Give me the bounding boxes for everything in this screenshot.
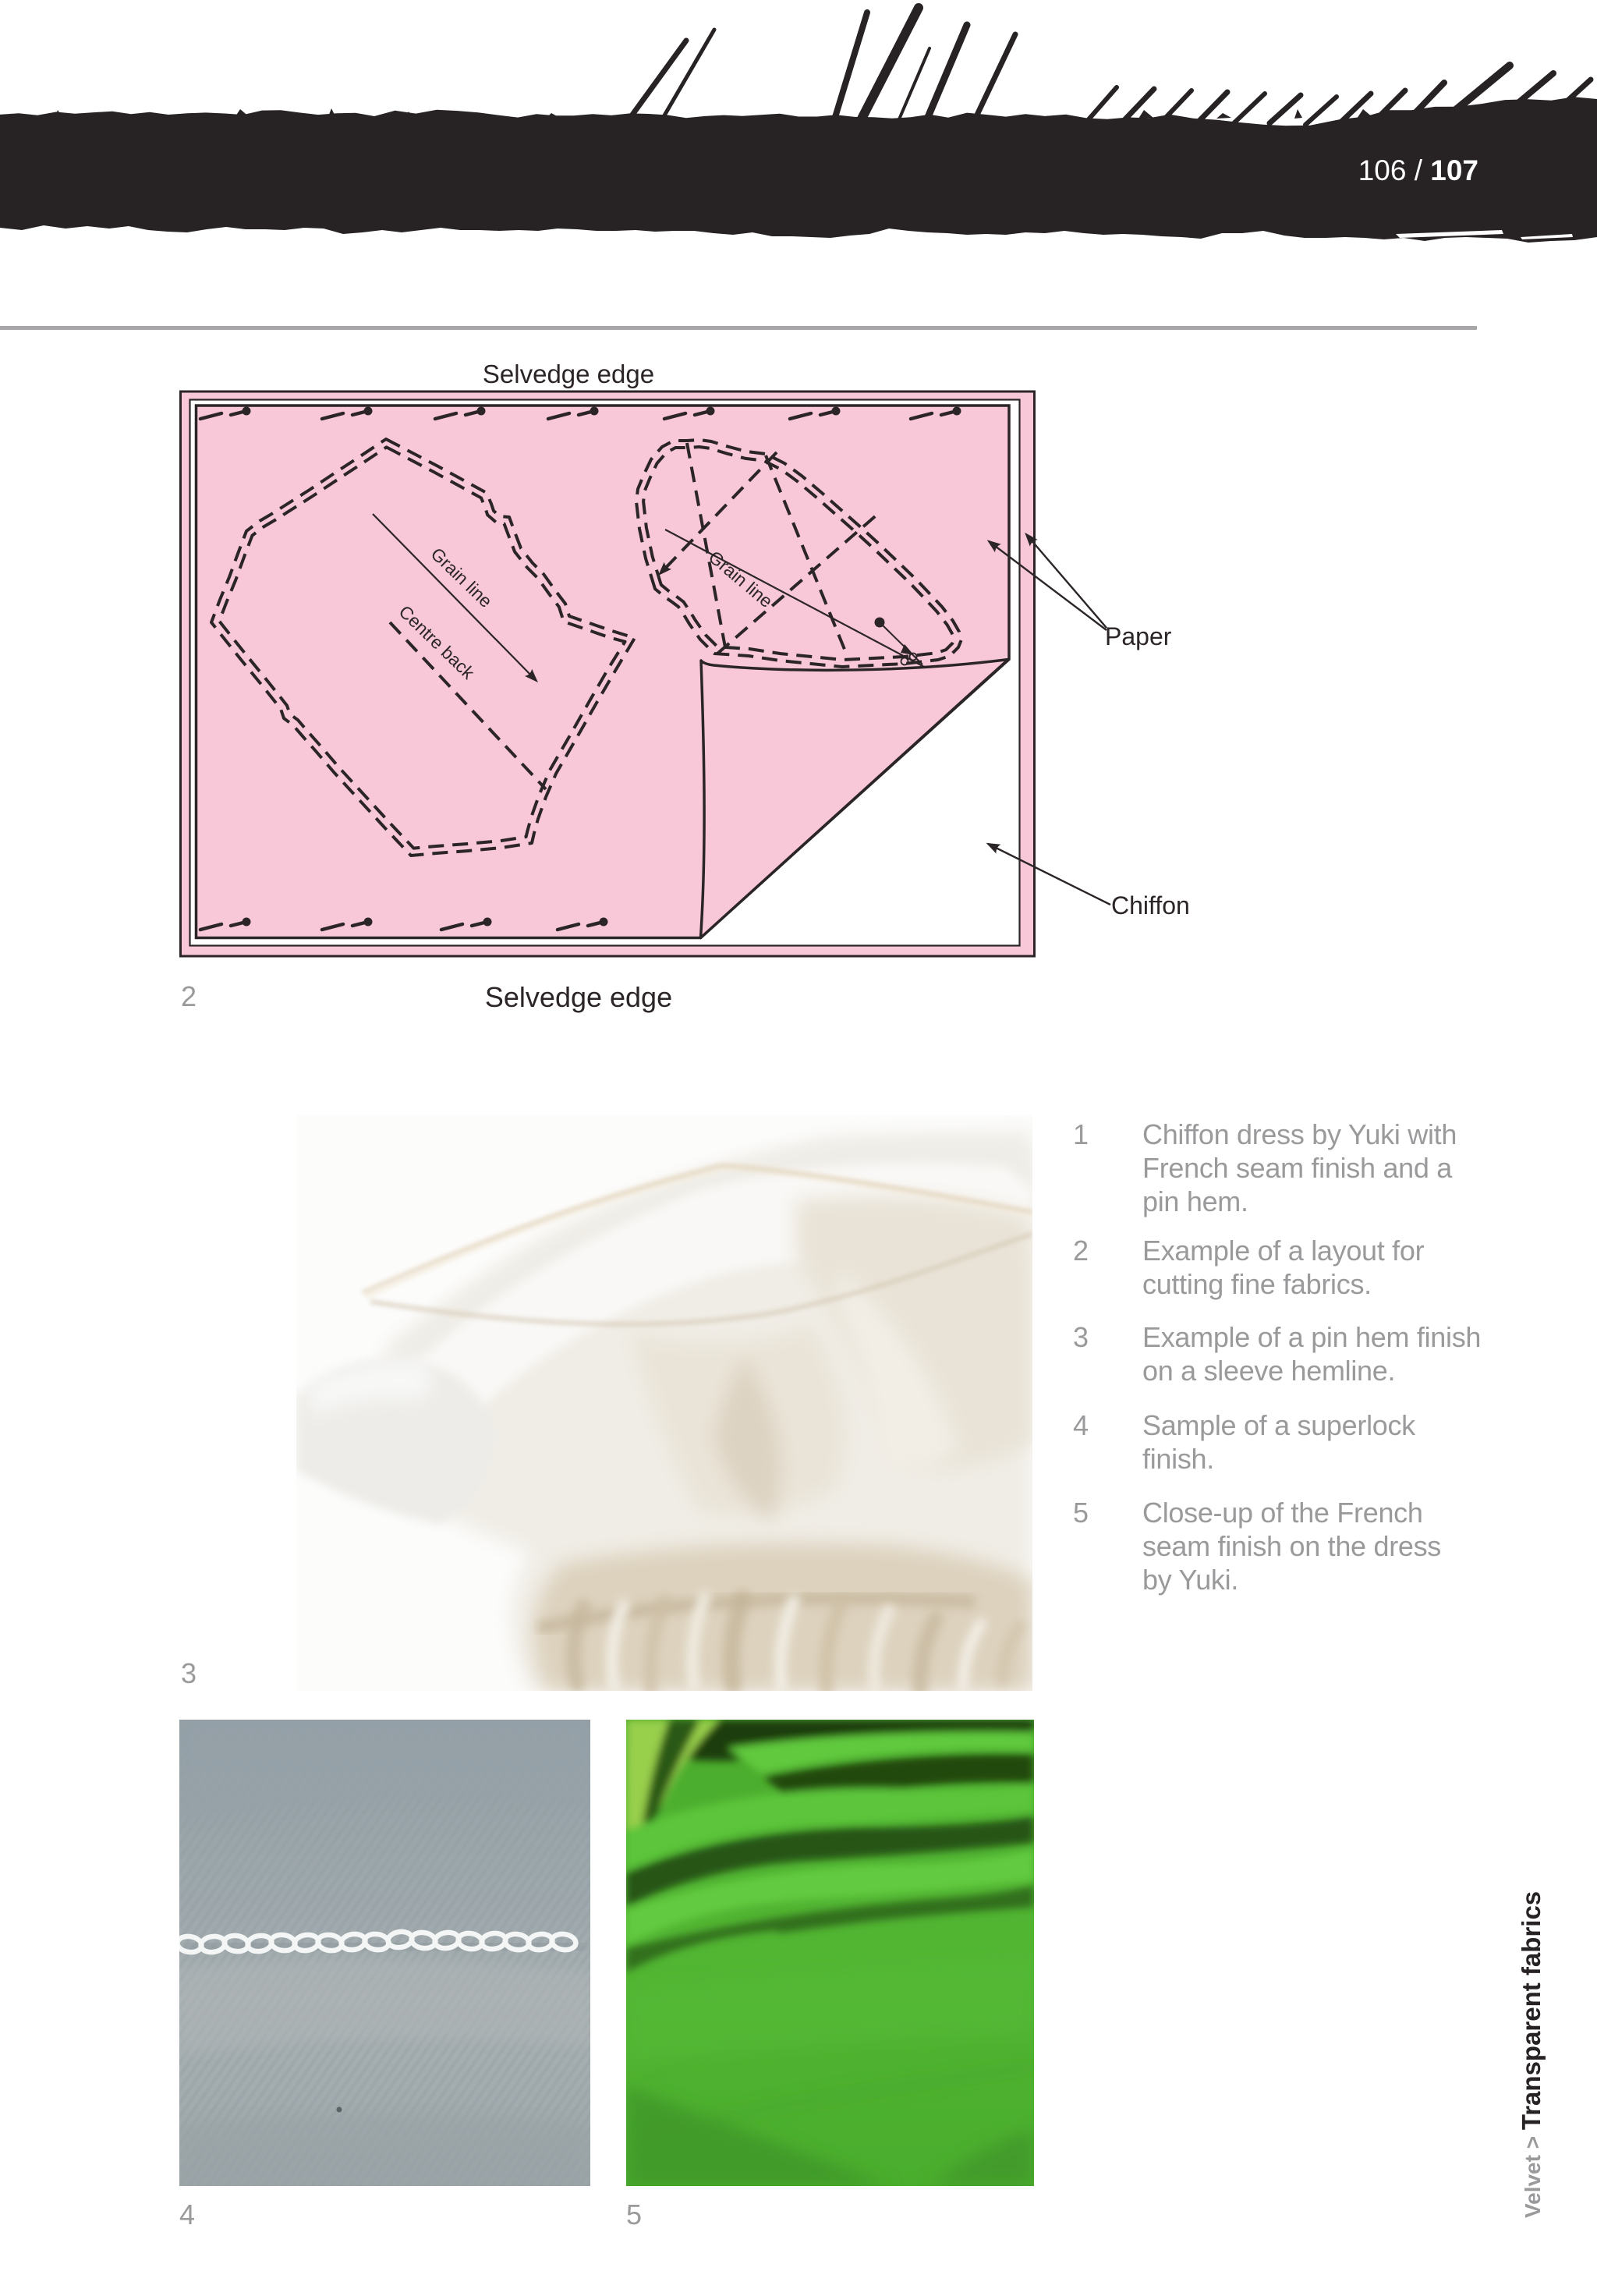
svg-text:106 / 107: 106 / 107	[1358, 154, 1478, 186]
svg-text:Chiffon: Chiffon	[1111, 891, 1190, 919]
svg-text:Paper: Paper	[1105, 622, 1172, 650]
svg-text:2: 2	[181, 980, 197, 1012]
svg-text:Selvedge edge: Selvedge edge	[483, 360, 654, 388]
svg-text:Selvedge edge: Selvedge edge	[485, 981, 672, 1013]
